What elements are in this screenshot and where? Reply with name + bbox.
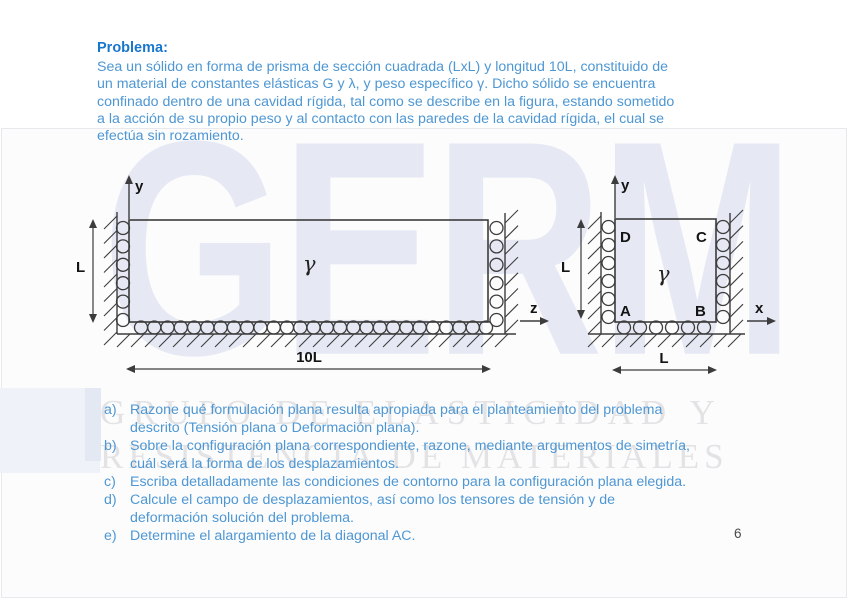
questions-list: a) Razone qué formulación plana resulta …: [104, 401, 804, 545]
question-line: cuál será la forma de los desplazamiento…: [130, 455, 804, 473]
question-label: a): [104, 401, 130, 437]
question-text: Calcule el campo de desplazamientos, así…: [130, 491, 804, 527]
question-text: Sobre la configuración plana correspondi…: [130, 437, 804, 473]
question-item: c) Escriba detalladamente las condicione…: [104, 473, 804, 491]
question-line: Determine el alargamiento de la diagonal…: [130, 527, 804, 545]
question-label: c): [104, 473, 130, 491]
problem-title: Problema:: [97, 40, 168, 56]
question-item: d) Calcule el campo de desplazamientos, …: [104, 491, 804, 527]
question-line: deformación solución del problema.: [130, 509, 804, 527]
question-line: Razone qué formulación plana resulta apr…: [130, 401, 804, 419]
statement-line: un material de constantes elásticas G y …: [97, 76, 674, 93]
question-label: b): [104, 437, 130, 473]
question-line: Escriba detalladamente las condiciones d…: [130, 473, 804, 491]
statement-line: efectúa sin rozamiento.: [97, 128, 674, 145]
question-line: Calcule el campo de desplazamientos, así…: [130, 491, 804, 509]
problem-statement: Sea un sólido en forma de prisma de secc…: [97, 59, 674, 145]
question-line: descrito (Tensión plana o Deformación pl…: [130, 419, 804, 437]
statement-line: Sea un sólido en forma de prisma de secc…: [97, 59, 674, 76]
question-item: e) Determine el alargamiento de la diago…: [104, 527, 804, 545]
question-label: d): [104, 491, 130, 527]
question-item: b) Sobre la configuración plana correspo…: [104, 437, 804, 473]
question-label: e): [104, 527, 130, 545]
statement-line: a la acción de su propio peso y al conta…: [97, 111, 674, 128]
watermark-left-accent: [85, 388, 101, 461]
page-number: 6: [734, 526, 742, 541]
question-text: Escriba detalladamente las condiciones d…: [130, 473, 804, 491]
question-line: Sobre la configuración plana correspondi…: [130, 437, 804, 455]
statement-line: confinado dentro de una cavidad rígida, …: [97, 94, 674, 111]
question-item: a) Razone qué formulación plana resulta …: [104, 401, 804, 437]
question-text: Razone qué formulación plana resulta apr…: [130, 401, 804, 437]
question-text: Determine el alargamiento de la diagonal…: [130, 527, 804, 545]
